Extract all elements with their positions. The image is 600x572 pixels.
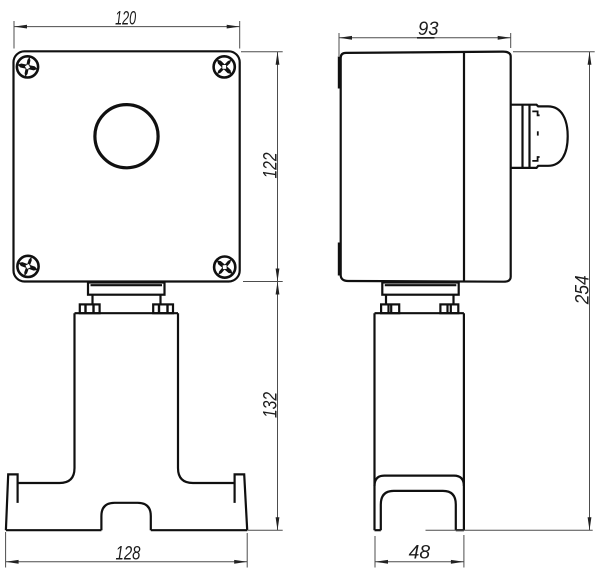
svg-text:254: 254 xyxy=(571,275,593,305)
svg-text:122: 122 xyxy=(260,152,282,178)
svg-text:48: 48 xyxy=(409,542,431,564)
svg-text:132: 132 xyxy=(260,392,282,418)
svg-text:128: 128 xyxy=(116,542,141,564)
svg-text:120: 120 xyxy=(115,8,136,30)
svg-text:93: 93 xyxy=(418,18,439,40)
